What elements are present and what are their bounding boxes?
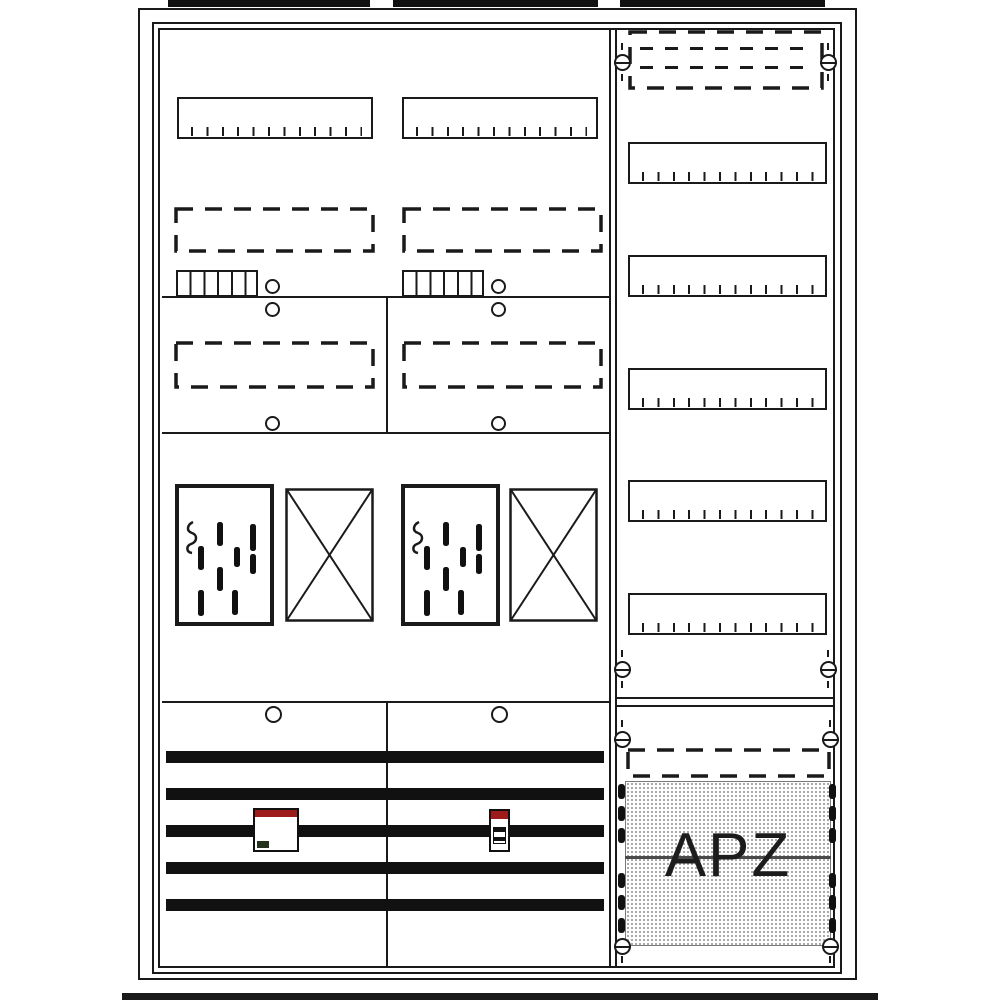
terminal-cells: [404, 272, 482, 295]
section-divider: [617, 697, 835, 699]
screw-mark: [827, 681, 829, 688]
fixing-mark: [618, 806, 625, 821]
device-label-chip: [257, 841, 269, 848]
cabinet-base-bar: [122, 993, 878, 1000]
terminal-strip: [402, 270, 484, 297]
screw-slot: [614, 62, 631, 64]
meter-contact-plate: [401, 484, 500, 626]
meter-contact-plate: [175, 484, 274, 626]
cover-screw: [822, 938, 839, 955]
cover-screw: [822, 731, 839, 748]
screw-mark: [829, 956, 831, 963]
mounting-tab: [620, 0, 825, 7]
screw-slot: [614, 669, 631, 671]
screw-mark: [621, 74, 623, 81]
screw-slot: [614, 739, 631, 741]
screw-slot: [614, 946, 631, 948]
busbar: [166, 825, 604, 837]
din-rail: [177, 97, 373, 139]
reserve-field-crossed: [285, 488, 374, 622]
fixing-mark: [829, 895, 836, 910]
section-divider: [162, 432, 609, 434]
cover-screw: [614, 731, 631, 748]
knockout-hole: [491, 302, 506, 317]
terminal-cells: [178, 272, 256, 295]
blanking-cover-dashed: [174, 207, 375, 253]
mounting-tab: [393, 0, 598, 7]
fixing-mark: [829, 828, 836, 843]
din-rail: [628, 142, 827, 184]
blind-cover-dash-row: [640, 66, 810, 69]
fixing-mark: [618, 828, 625, 843]
apz-cover-dashed: [626, 748, 831, 778]
rail-ticks: [642, 285, 816, 294]
blanking-cover-dashed: [402, 207, 603, 253]
cover-screw: [614, 54, 631, 71]
fixing-mark: [618, 784, 625, 799]
din-rail: [628, 593, 827, 635]
apz-label: APZ: [626, 825, 830, 887]
fixing-mark: [829, 873, 836, 888]
blanking-cover-dashed: [402, 341, 603, 389]
din-rail: [628, 368, 827, 410]
rail-ticks: [191, 127, 362, 136]
device-red-cap: [255, 810, 297, 817]
screw-mark: [621, 720, 623, 727]
device-lever: [493, 827, 506, 844]
knockout-hole: [491, 706, 508, 723]
screw-mark: [621, 956, 623, 963]
knockout-hole: [265, 279, 280, 294]
column-divider: [609, 28, 611, 968]
rail-ticks: [642, 398, 816, 407]
rail-ticks: [642, 623, 816, 632]
screw-slot: [820, 669, 837, 671]
reserve-field-crossed: [509, 488, 598, 622]
meter-cabinet-diagram: APZ: [0, 0, 1000, 1000]
knockout-hole: [265, 706, 282, 723]
blind-cover-dash-row: [640, 47, 810, 50]
busbar: [166, 899, 604, 911]
rail-ticks: [642, 510, 816, 519]
din-rail: [628, 255, 827, 297]
screw-mark: [829, 720, 831, 727]
section-divider: [617, 705, 835, 707]
busbar: [166, 788, 604, 800]
screw-mark: [621, 43, 623, 50]
cover-screw: [614, 661, 631, 678]
meter-field-divider: [386, 297, 388, 433]
device-switch-small: [489, 809, 510, 852]
fixing-mark: [829, 784, 836, 799]
cover-screw: [820, 54, 837, 71]
din-rail: [402, 97, 598, 139]
fixing-mark: [829, 806, 836, 821]
knockout-hole: [491, 416, 506, 431]
rail-ticks: [642, 172, 816, 181]
mounting-tab: [168, 0, 370, 7]
cover-screw: [614, 938, 631, 955]
busbar: [166, 862, 604, 874]
blanking-cover-dashed: [174, 341, 375, 389]
din-rail: [628, 480, 827, 522]
screw-slot: [822, 739, 839, 741]
screw-slot: [820, 62, 837, 64]
fixing-mark: [829, 918, 836, 933]
knockout-hole: [491, 279, 506, 294]
screw-mark: [827, 74, 829, 81]
knockout-hole: [265, 302, 280, 317]
screw-mark: [827, 650, 829, 657]
rail-ticks: [416, 127, 587, 136]
screw-slot: [822, 946, 839, 948]
terminal-strip: [176, 270, 258, 297]
fixing-mark: [618, 873, 625, 888]
cover-screw: [820, 661, 837, 678]
screw-mark: [827, 43, 829, 50]
device-red-cap: [491, 811, 508, 819]
fixing-mark: [618, 895, 625, 910]
fixing-mark: [618, 918, 625, 933]
screw-mark: [621, 681, 623, 688]
blind-cover-dashed: [628, 30, 824, 90]
screw-mark: [621, 650, 623, 657]
knockout-hole: [265, 416, 280, 431]
busbar: [166, 751, 604, 763]
column-divider: [615, 28, 617, 968]
device-switch-large: [253, 808, 299, 852]
